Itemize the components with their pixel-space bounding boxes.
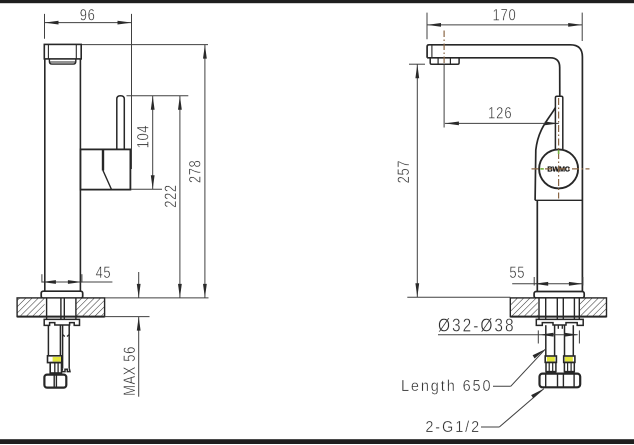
svg-text:55: 55	[509, 264, 525, 283]
svg-text:45: 45	[96, 263, 112, 282]
svg-text:257: 257	[394, 160, 413, 183]
svg-text:104: 104	[134, 125, 153, 148]
svg-text:Ø32-Ø38: Ø32-Ø38	[438, 315, 516, 336]
svg-text:170: 170	[492, 6, 516, 25]
svg-text:Length 650: Length 650	[401, 378, 493, 396]
svg-text:MAX 56: MAX 56	[120, 346, 139, 396]
svg-text:222: 222	[161, 184, 180, 207]
svg-text:126: 126	[488, 104, 513, 123]
svg-text:278: 278	[186, 160, 205, 183]
svg-text:2-G1/2: 2-G1/2	[425, 419, 481, 437]
svg-text:96: 96	[80, 6, 96, 25]
